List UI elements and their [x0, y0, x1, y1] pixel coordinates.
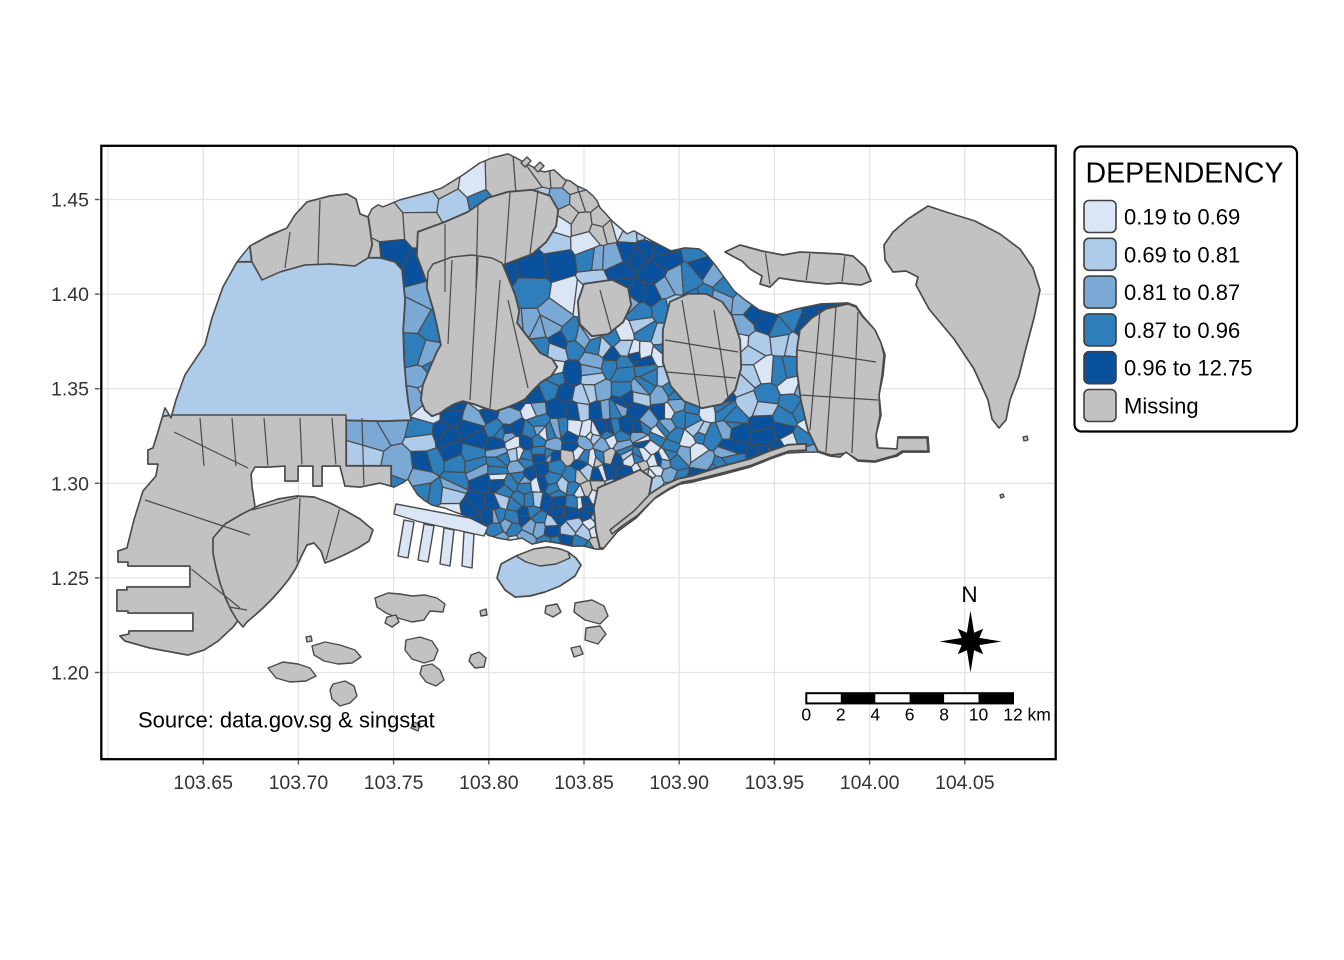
- svg-text:0: 0: [801, 705, 811, 725]
- svg-text:103.75: 103.75: [364, 772, 424, 794]
- svg-text:103.85: 103.85: [554, 772, 614, 794]
- svg-text:1.20: 1.20: [51, 663, 89, 685]
- svg-text:0.19 to 0.69: 0.19 to 0.69: [1124, 205, 1240, 230]
- svg-text:1.30: 1.30: [51, 473, 89, 495]
- svg-text:km: km: [1028, 705, 1051, 725]
- svg-text:0.81 to 0.87: 0.81 to 0.87: [1124, 280, 1240, 305]
- svg-text:0.96 to 12.75: 0.96 to 12.75: [1124, 356, 1252, 381]
- svg-text:12: 12: [1003, 705, 1022, 725]
- svg-text:1.40: 1.40: [51, 284, 89, 306]
- svg-text:4: 4: [870, 705, 880, 725]
- svg-text:N: N: [961, 582, 977, 607]
- svg-text:10: 10: [969, 705, 989, 725]
- svg-text:Source: data.gov.sg & singstat: Source: data.gov.sg & singstat: [138, 708, 435, 733]
- svg-text:Missing: Missing: [1124, 394, 1199, 419]
- svg-text:103.90: 103.90: [649, 772, 709, 794]
- svg-text:6: 6: [905, 705, 915, 725]
- svg-text:104.00: 104.00: [840, 772, 900, 794]
- svg-text:8: 8: [939, 705, 949, 725]
- svg-text:103.95: 103.95: [745, 772, 805, 794]
- svg-text:0.69 to 0.81: 0.69 to 0.81: [1124, 242, 1240, 267]
- svg-text:103.80: 103.80: [459, 772, 519, 794]
- svg-text:2: 2: [836, 705, 846, 725]
- svg-text:0.87 to 0.96: 0.87 to 0.96: [1124, 318, 1240, 343]
- svg-text:1.35: 1.35: [51, 379, 89, 401]
- svg-text:104.05: 104.05: [935, 772, 995, 794]
- svg-text:1.45: 1.45: [51, 190, 89, 212]
- svg-text:DEPENDENCY: DEPENDENCY: [1086, 158, 1284, 190]
- svg-text:103.70: 103.70: [269, 772, 329, 794]
- svg-text:1.25: 1.25: [51, 568, 89, 590]
- svg-text:103.65: 103.65: [173, 772, 233, 794]
